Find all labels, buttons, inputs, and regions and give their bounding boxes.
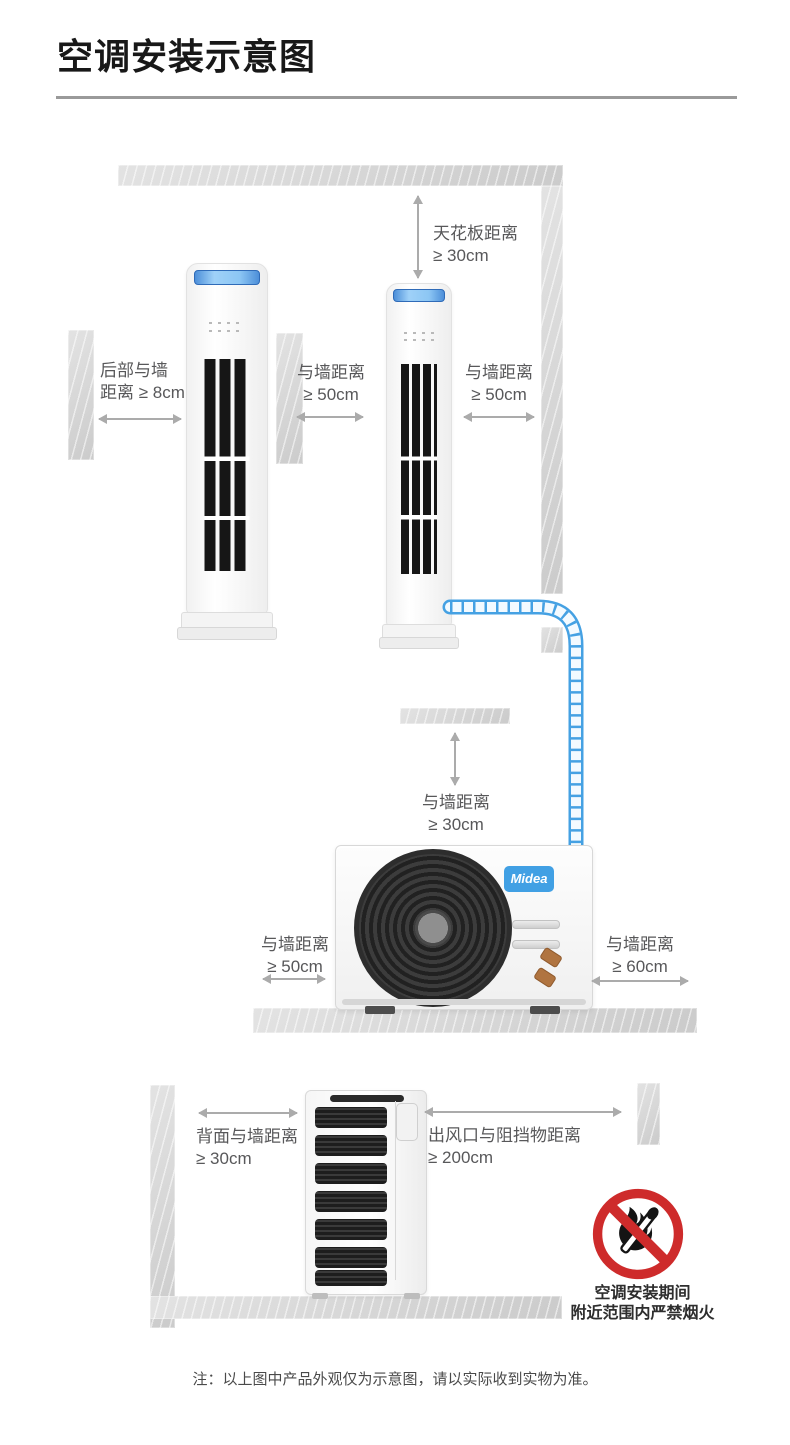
bottom-floor <box>150 1296 562 1319</box>
ceiling-wall <box>118 165 563 186</box>
rear-vent-slot <box>315 1219 387 1240</box>
arrow-outlet-200-icon <box>425 1111 621 1113</box>
rear-panel-handle <box>396 1103 418 1141</box>
rear-vent-slot <box>315 1163 387 1184</box>
tower-base-right <box>379 637 459 649</box>
outdoor-unit-rear-view <box>305 1090 427 1295</box>
right-wall-lower <box>541 627 563 653</box>
arrow-rear-bottom-30-icon <box>199 1112 297 1114</box>
indoor-tower-unit-right <box>386 283 452 627</box>
rear-vent-slot <box>315 1135 387 1156</box>
dim-outdoor-right-60-label: 与墙距离 ≥ 60cm <box>602 934 678 979</box>
outdoor-foot <box>530 1006 560 1014</box>
tower-display-strip <box>194 270 260 285</box>
mid-horizontal-wall <box>400 708 510 724</box>
arrow-wall-right-50-icon <box>464 416 534 418</box>
dim-outdoor-left-50-label: 与墙距离 ≥ 50cm <box>257 934 333 979</box>
arrow-outdoor-right-60-icon <box>592 980 688 982</box>
outdoor-bottom-rail <box>342 999 586 1005</box>
tower-control-dots <box>209 322 245 324</box>
rear-vent-slot <box>315 1270 387 1286</box>
dim-outlet-200-label: 出风口与阻挡物距离 ≥ 200cm <box>428 1125 581 1170</box>
dim-wall-right-50-label: 与墙距离 ≥ 50cm <box>461 362 537 407</box>
dim-wall-mid-30-label: 与墙距离 ≥ 30cm <box>417 792 495 837</box>
rear-top-handle <box>330 1095 404 1102</box>
tower-control-dots <box>209 330 245 332</box>
page-title: 空调安装示意图 <box>57 28 316 80</box>
title-divider <box>56 96 737 99</box>
rear-vent-slot <box>315 1191 387 1212</box>
bottom-right-wall-segment <box>637 1083 660 1145</box>
left-wall-segment <box>68 330 94 460</box>
bottom-left-wall <box>150 1085 175 1328</box>
arrow-ceiling-icon <box>417 196 419 278</box>
indoor-tower-unit-left <box>186 263 268 614</box>
rear-vent-slot <box>315 1247 387 1268</box>
no-fire-icon <box>591 1187 685 1281</box>
tower-control-dots <box>404 332 434 334</box>
fan-grille <box>354 849 512 1007</box>
installation-diagram-page: 空调安装示意图 Midea <box>0 0 790 1445</box>
tower-air-vent <box>205 359 250 571</box>
arrow-wall-left-50-icon <box>297 416 363 418</box>
side-vent-slat <box>512 920 560 929</box>
outdoor-foot <box>365 1006 395 1014</box>
dim-wall-left-50-label: 与墙距离 ≥ 50cm <box>293 362 369 407</box>
rear-vent-slot <box>315 1107 387 1128</box>
tower-air-vent <box>401 364 437 574</box>
no-fire-warning-text: 空调安装期间 附近范围内严禁烟火 <box>545 1284 740 1324</box>
dim-ceiling-label: 天花板距离 ≥ 30cm <box>433 223 518 268</box>
outdoor-unit: Midea <box>335 845 593 1010</box>
tower-control-dots <box>404 339 434 341</box>
arrow-wall-mid-30-icon <box>454 733 456 785</box>
right-wall-upper <box>541 186 563 594</box>
rear-foot <box>312 1293 328 1299</box>
midea-logo: Midea <box>504 866 554 892</box>
tower-base-left <box>177 627 277 640</box>
tower-display-strip <box>393 289 446 302</box>
arrow-rear-top-icon <box>99 418 181 420</box>
dim-rear-top-label: 后部与墙 距离 ≥ 8cm <box>100 360 185 405</box>
dim-rear-bottom-30-label: 背面与墙距离 ≥ 30cm <box>196 1126 298 1171</box>
footnote: 注：以上图中产品外观仅为示意图，请以实际收到实物为准。 <box>0 1368 790 1389</box>
outdoor-ground <box>253 1008 697 1033</box>
rear-foot <box>404 1293 420 1299</box>
side-vent-slat <box>512 940 560 949</box>
